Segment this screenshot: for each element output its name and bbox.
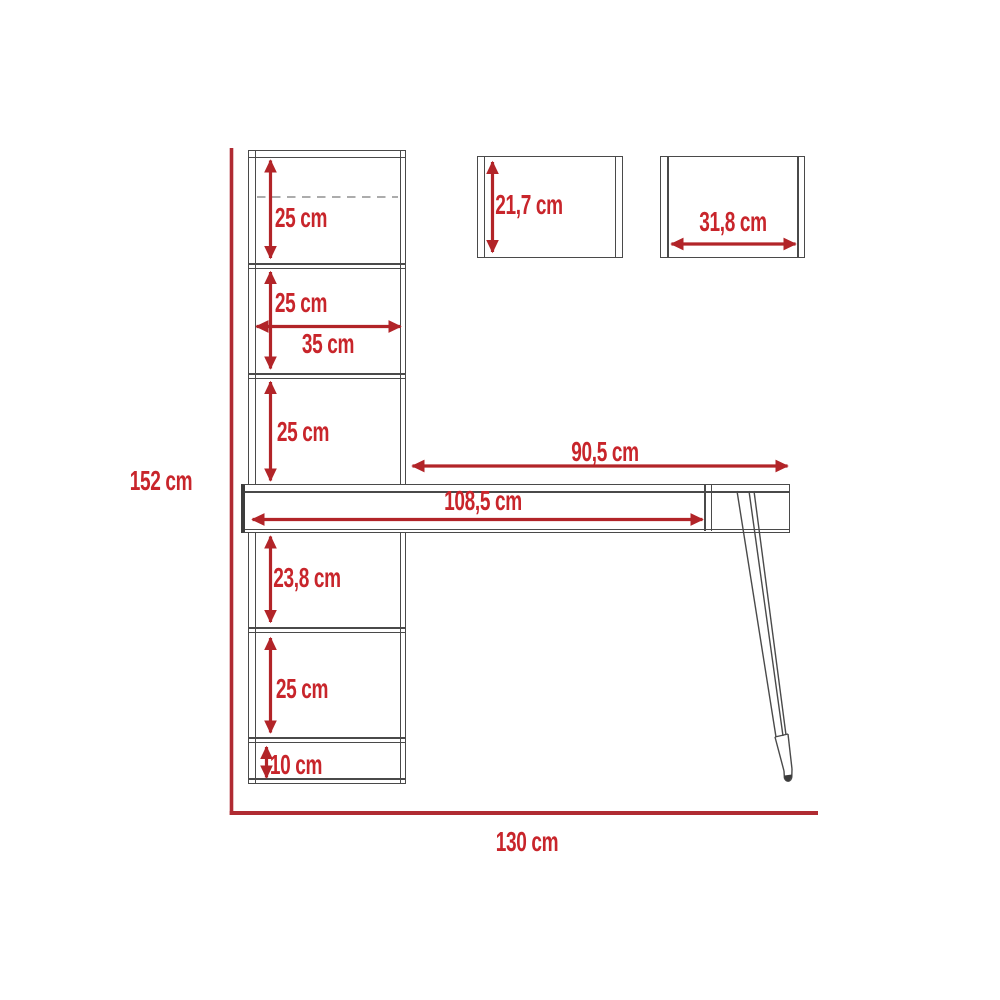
- desk-leg: [737, 491, 792, 781]
- dim-label-shelf-width: 35 cm: [302, 328, 354, 360]
- dim-label-section-6: 10 cm: [270, 749, 322, 781]
- dim-label-section-2: 25 cm: [275, 287, 327, 319]
- dim-label-section-4: 23,8 cm: [273, 562, 340, 594]
- dim-label-small-panel-height: 21,7 cm: [495, 189, 562, 221]
- dim-label-large-panel-width: 31,8 cm: [699, 206, 766, 238]
- dim-label-overall-width: 130 cm: [496, 826, 559, 858]
- dim-label-drawer-width: 108,5 cm: [444, 485, 522, 517]
- dim-label-worktop-width: 90,5 cm: [571, 436, 638, 468]
- dim-label-section-1: 25 cm: [275, 202, 327, 234]
- dimension-diagram: 152 cm 130 cm 25 cm 25 cm 25 cm 23,8 cm …: [0, 0, 1000, 1000]
- dim-label-overall-height: 152 cm: [130, 465, 193, 497]
- dim-label-section-5: 25 cm: [276, 673, 328, 705]
- dim-label-section-3: 25 cm: [277, 416, 329, 448]
